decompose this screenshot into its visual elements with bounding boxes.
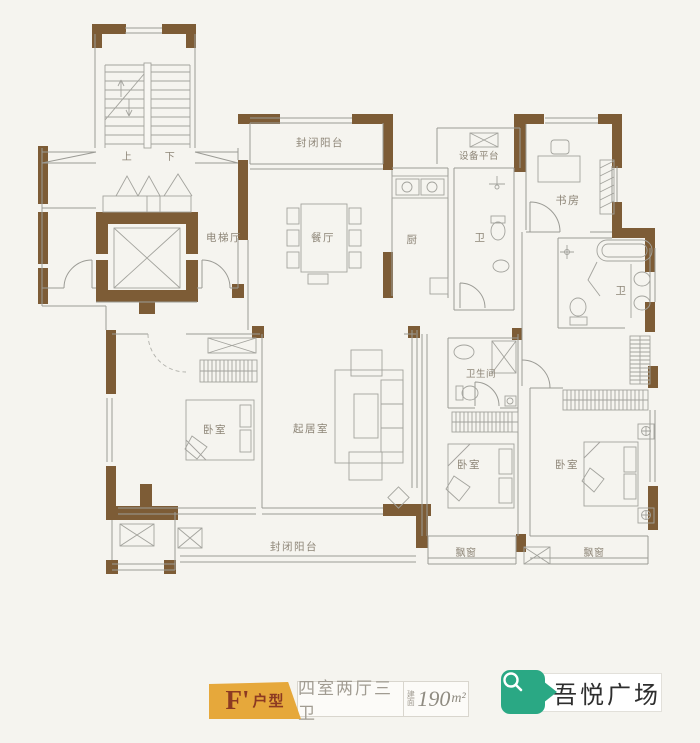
area-unit: m² [451,691,465,707]
unit-suffix: 户型 [252,690,284,711]
label-equipment-platform: 设备平台 [459,150,499,162]
bathroom-small-fixtures [489,176,509,272]
label-bath-master: 卫 [616,285,627,297]
label-bedroom-mid: 卧室 [457,458,481,471]
floor-plan-screenshot: 上 下 电梯厅 封闭阳台 餐厅 厨 卫 设备平台 书房 卫 卧室 起居室 卫生间… [0,0,700,743]
layout-spec: 四室两厅三卫 [298,682,404,716]
room-labels: 上 下 电梯厅 封闭阳台 餐厅 厨 卫 设备平台 书房 卫 卧室 起居室 卫生间… [122,136,627,559]
stair-arrows [118,80,132,116]
label-bathroom-mid: 卫生间 [466,368,496,380]
label-elevator-hall: 电梯厅 [206,231,242,244]
dining-table [287,204,361,284]
unit-code: F' [225,687,249,714]
label-bay-window-right: 飘窗 [584,546,605,559]
search-icon [501,670,525,694]
label-bedroom-right: 卧室 [555,458,579,471]
floor-plan: 上 下 电梯厅 封闭阳台 餐厅 厨 卫 设备平台 书房 卫 卧室 起居室 卫生间… [0,0,700,743]
label-stairs-down: 下 [165,152,176,163]
area-prefix: 建面 [406,691,415,707]
brand-badge-arrow [543,681,557,703]
label-balcony-top: 封闭阳台 [296,136,344,149]
label-stairs-up: 上 [122,151,133,163]
equipment-platform-vent [470,133,498,147]
bedroom-left-door-arc [148,334,186,372]
bedroom-left-furniture [185,338,257,460]
unit-type-badge: F'户型 [209,682,301,719]
label-bedroom-left: 卧室 [203,423,227,436]
area-value: 190 [417,688,450,710]
unit-spec-box: 四室两厅三卫 建面190m² [297,681,469,717]
label-bay-window-mid: 飘窗 [456,546,477,559]
label-study: 书房 [556,194,581,207]
area-spec: 建面190m² [404,682,468,716]
label-living: 起居室 [293,422,329,435]
kitchen-counter [392,176,448,294]
living-room-furniture [335,350,409,508]
bedroom-right-furniture [563,336,654,523]
brand-name: 吾悦广场 [553,675,661,710]
brand-badge [501,670,545,714]
brown-walls [38,24,658,574]
label-dining: 餐厅 [311,231,335,244]
label-balcony-bottom: 封闭阳台 [270,540,318,553]
staircase [105,63,190,148]
bathroom-master-fixtures [560,240,652,325]
label-bath-small: 卫 [475,232,486,244]
elevator [103,174,192,288]
label-kitchen: 厨 [407,234,418,246]
